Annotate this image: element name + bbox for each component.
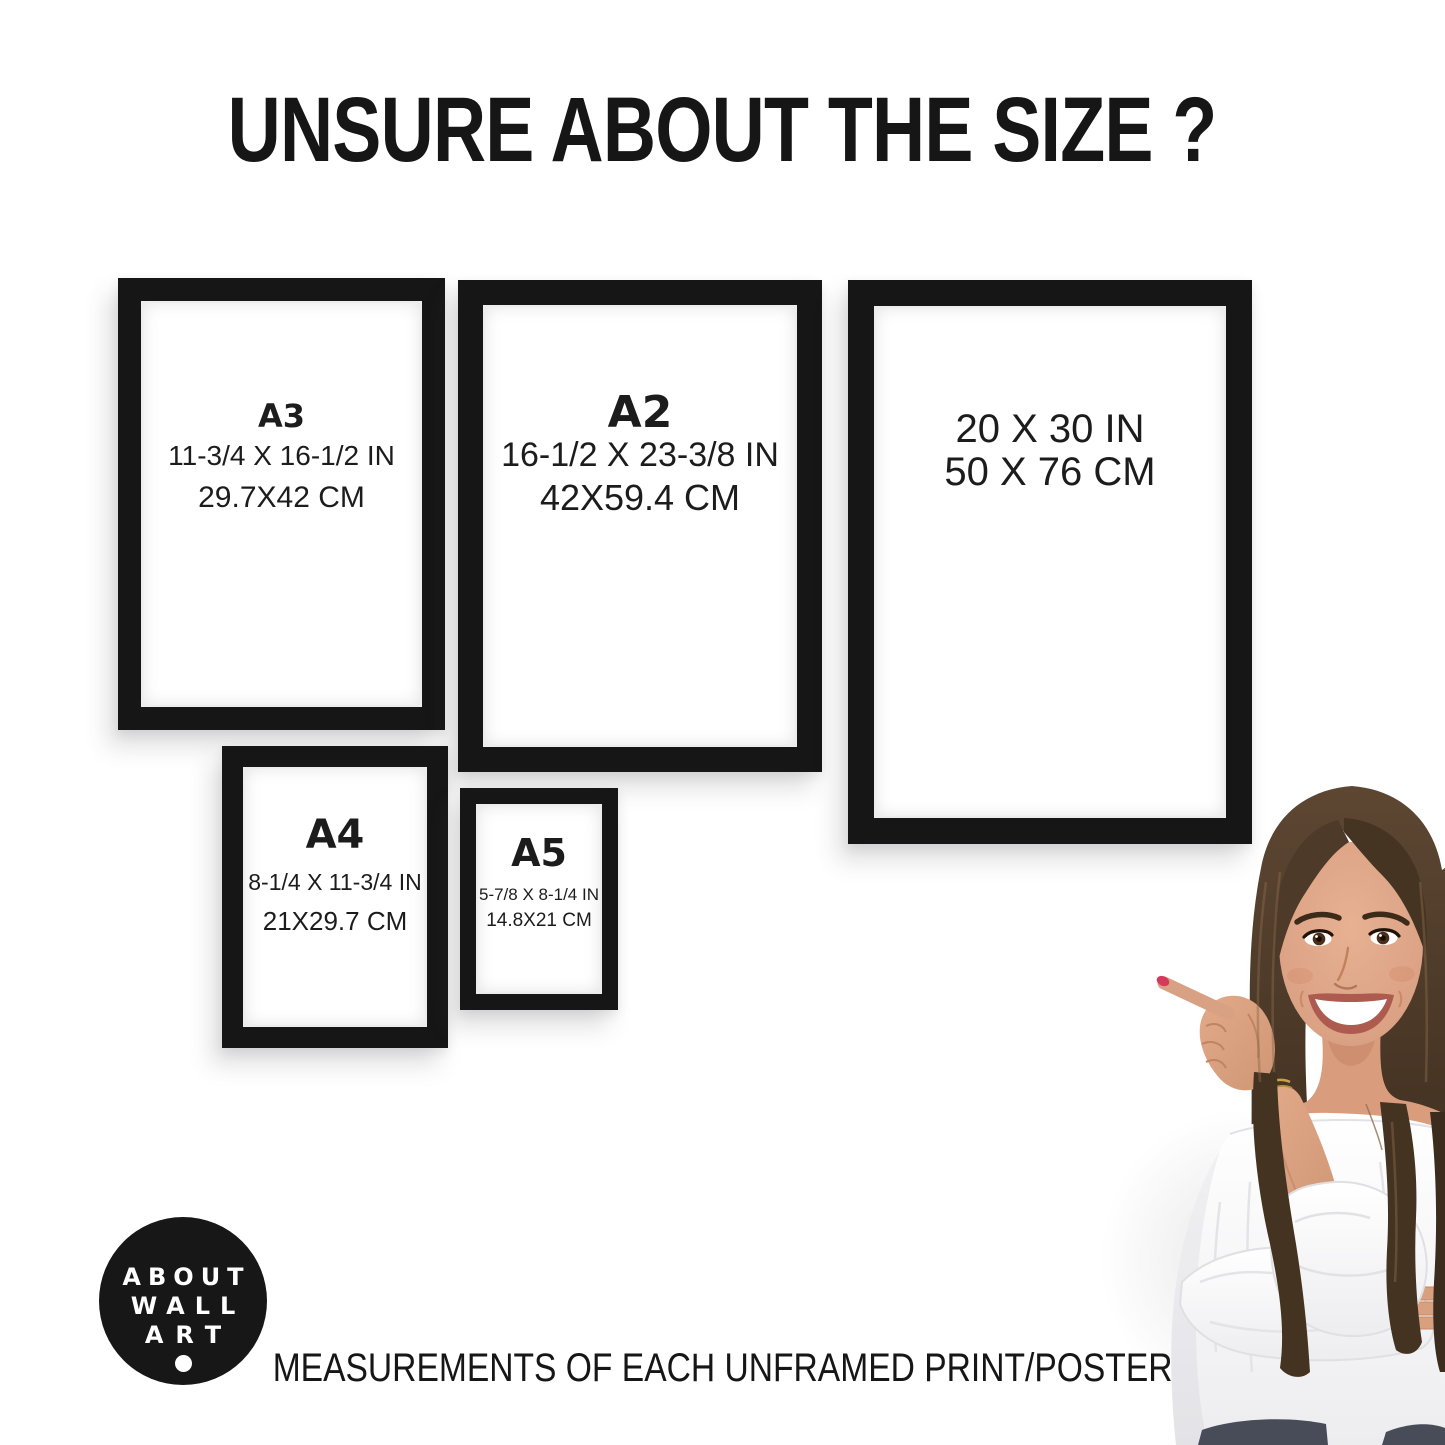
frame-a3: A3 11-3/4 X 16-1/2 IN 29.7X42 CM <box>118 278 445 730</box>
frame-a4-size-inches: 8-1/4 X 11-3/4 IN <box>222 870 448 894</box>
frame-a3-label: A3 <box>118 400 445 434</box>
brand-logo-text: ABOUT WALL ART <box>99 1263 267 1350</box>
frame-a4-size-cm: 21X29.7 CM <box>222 908 448 935</box>
blush-right <box>1389 966 1415 982</box>
frame-a3-size-cm: 29.7X42 CM <box>118 482 445 514</box>
glint-left <box>1315 935 1318 938</box>
frame-a3-size-inches: 11-3/4 X 16-1/2 IN <box>118 441 445 470</box>
size-guide-poster: UNSURE ABOUT THE SIZE ? A3 11-3/4 X 16-1… <box>0 0 1445 1445</box>
brand-logo-line-2: WALL <box>99 1292 267 1321</box>
frame-a5: A5 5-7/8 X 8-1/4 IN 14.8X21 CM <box>460 788 618 1010</box>
frame-a4-paper <box>243 767 427 1027</box>
frame-a2-size-cm: 42X59.4 CM <box>458 479 822 517</box>
frame-a4: A4 8-1/4 X 11-3/4 IN 21X29.7 CM <box>222 746 448 1048</box>
frame-a2: A2 16-1/2 X 23-3/8 IN 42X59.4 CM <box>458 280 822 772</box>
frame-20x30-paper <box>874 306 1226 818</box>
brand-logo-line-3: ART <box>99 1321 267 1350</box>
brand-logo-line-1: ABOUT <box>99 1263 267 1292</box>
index-finger <box>1164 983 1228 1013</box>
frame-a2-label: A2 <box>458 390 822 436</box>
frame-a2-size-inches: 16-1/2 X 23-3/8 IN <box>458 438 822 474</box>
woman-pointing-photo <box>1130 782 1445 1445</box>
frame-a5-label: A5 <box>460 834 618 874</box>
frame-a5-size-cm: 14.8X21 CM <box>460 911 618 931</box>
frame-20x30-size-inches: 20 X 30 IN <box>848 408 1252 450</box>
frame-a2-paper <box>483 305 797 747</box>
frame-20x30-size-cm: 50 X 76 CM <box>848 451 1252 493</box>
blush-left <box>1287 968 1313 984</box>
frame-20x30: 20 X 30 IN 50 X 76 CM <box>848 280 1252 844</box>
page-title-text: UNSURE ABOUT THE SIZE ? <box>228 84 1217 176</box>
glint-right <box>1379 934 1382 937</box>
frame-a5-size-inches: 5-7/8 X 8-1/4 IN <box>460 886 618 904</box>
frame-a4-label: A4 <box>222 814 448 856</box>
page-title: UNSURE ABOUT THE SIZE ? <box>0 84 1445 176</box>
